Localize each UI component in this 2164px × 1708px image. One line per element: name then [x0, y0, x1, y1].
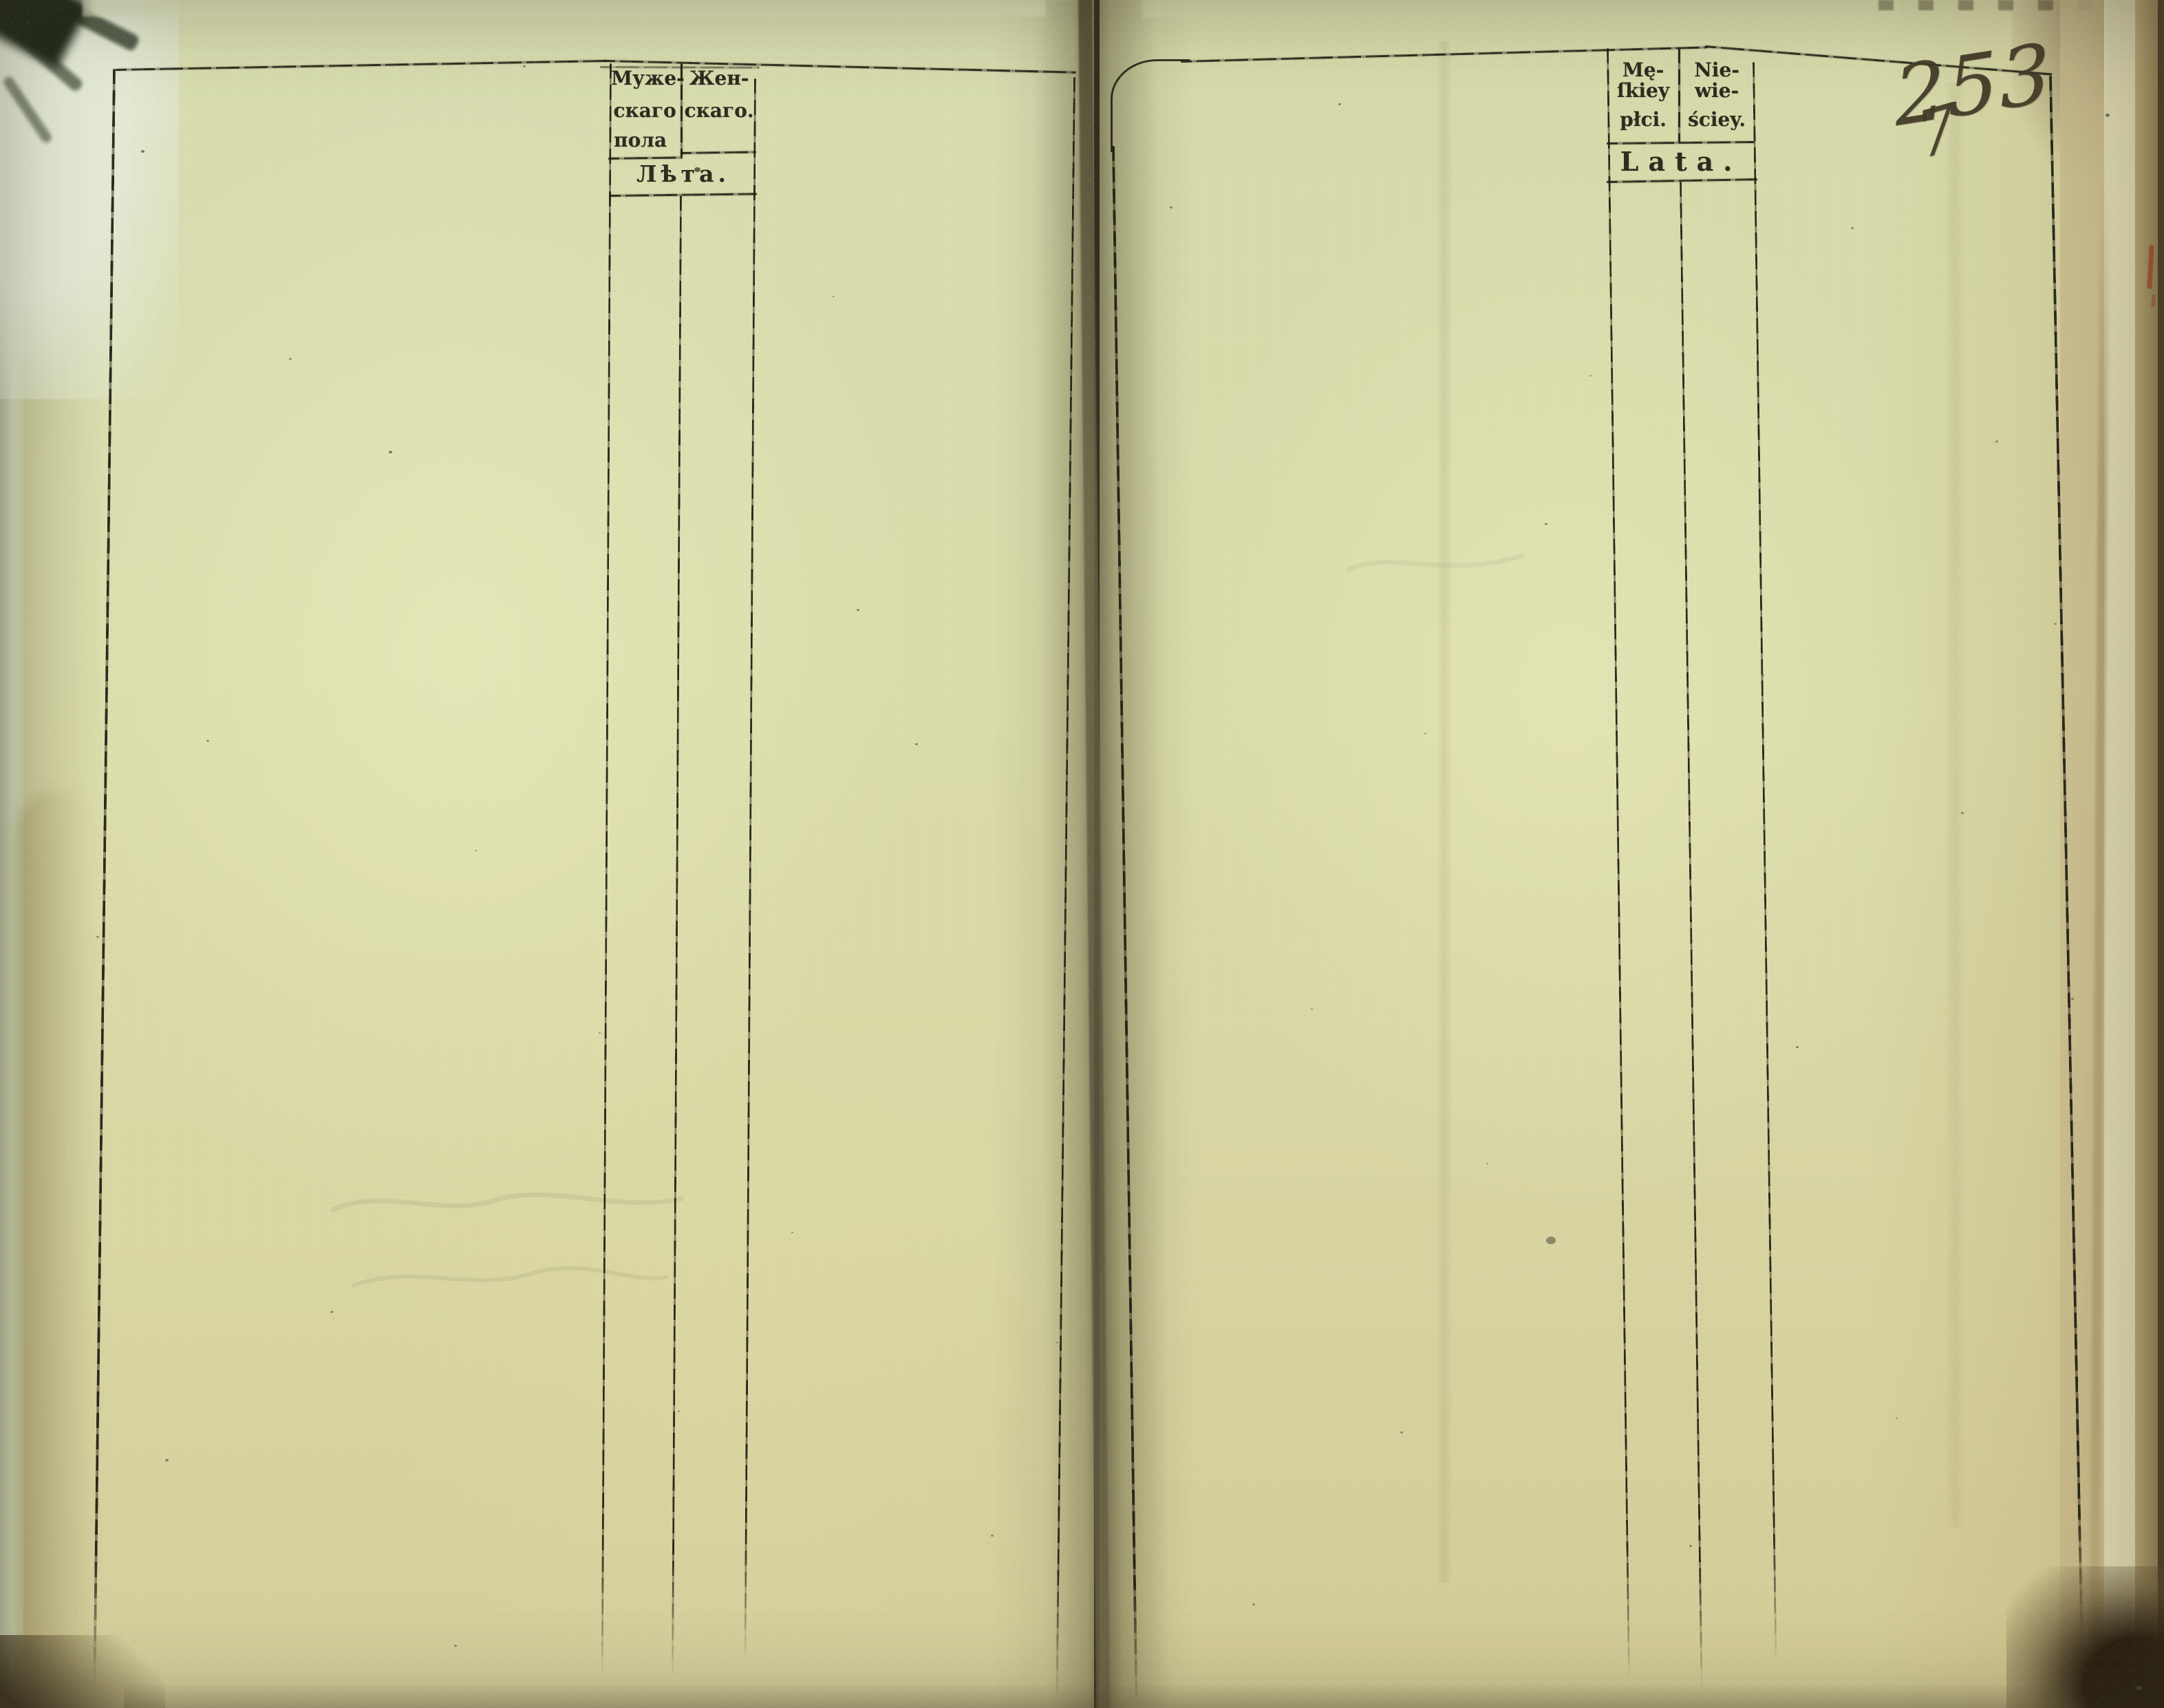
paper-speck — [1424, 733, 1426, 734]
paper-speck — [475, 850, 477, 851]
paper-speck — [678, 1411, 680, 1412]
left-header-male-line2: скаго — [610, 101, 680, 120]
paper-speck — [2106, 114, 2110, 117]
paper-speck — [915, 743, 918, 745]
paper-speck — [1896, 1418, 1898, 1419]
paper-speck — [1545, 523, 1547, 525]
ink-showthrough — [1342, 537, 1534, 599]
paper-speck — [96, 936, 99, 938]
paper-speck — [857, 609, 859, 611]
right-header-male-line3: płci. — [1608, 110, 1678, 129]
paper-speck — [1252, 1603, 1255, 1605]
paper-speck — [991, 1535, 994, 1537]
paper-speck — [2071, 998, 2074, 1000]
right-header-age-label: Lata. — [1608, 149, 1754, 175]
paper-speck — [694, 167, 700, 172]
ink-showthrough — [323, 1177, 695, 1314]
bottom-edge-shadow — [124, 1683, 2071, 1708]
paper-speck — [1689, 1545, 1692, 1547]
right-header-male-line2: ſkiey — [1608, 81, 1678, 100]
paper-speck — [141, 150, 144, 153]
paper-speck — [1311, 1008, 1313, 1010]
paper-edge-top — [83, 0, 1046, 17]
right-header-female-line3: ściey. — [1681, 110, 1753, 129]
left-header-male-line3: пола — [608, 131, 680, 150]
paper-speck — [523, 65, 526, 67]
paper-speck — [2054, 623, 2057, 625]
right-header-female-line1: Nie- — [1681, 61, 1753, 80]
paper-crease — [1435, 41, 1453, 1583]
paper-speck — [1056, 1342, 1058, 1343]
paper-speck — [1170, 206, 1172, 209]
left-header-female-line2: скаго. — [683, 101, 756, 120]
paper-speck — [330, 1311, 333, 1313]
paper-speck — [2136, 1686, 2142, 1690]
paper-speck — [1400, 1431, 1403, 1433]
paper-speck — [791, 1232, 793, 1233]
paper-edge-top — [1142, 0, 1899, 18]
paper-edge-right — [2158, 0, 2164, 1708]
left-header-age-label: Лѣта. — [611, 162, 756, 185]
paper-edge-right — [2104, 0, 2137, 1708]
right-header-female-line2: wie- — [1681, 81, 1753, 100]
left-header-male-line1: Муже- — [611, 69, 681, 88]
paper-speck — [389, 451, 392, 453]
paper-speck — [1796, 1046, 1799, 1048]
paper-speck — [1995, 440, 1998, 442]
corner-top-left — [0, 0, 179, 399]
paper-stain — [15, 791, 105, 1708]
book-scan: Муже- скаго пола Жен- скаго. Лѣта. Mę- ſ… — [0, 0, 2164, 1708]
paper-speck — [1338, 103, 1341, 105]
paper-speck — [599, 1032, 601, 1034]
paper-speck — [1961, 812, 1964, 814]
paper-speck — [206, 740, 209, 742]
paper-speck — [1589, 375, 1592, 376]
right-page — [1100, 0, 2164, 1708]
paper-speck — [833, 296, 835, 297]
paper-speck — [1851, 227, 1854, 229]
paper-speck — [1486, 1163, 1488, 1164]
left-header-female-line1: Жен- — [683, 69, 756, 88]
paper-speck — [289, 358, 292, 360]
paper-speck — [454, 1645, 457, 1647]
paper-speck — [1546, 1237, 1556, 1244]
left-page — [19, 0, 1094, 1708]
paper-speck — [165, 1459, 169, 1462]
paper-crease — [1945, 83, 1965, 1528]
right-table-corner — [1111, 59, 1190, 152]
paper-speck — [1761, 674, 1764, 676]
right-col-divider-top — [1678, 48, 1680, 143]
right-header-male-line1: Mę- — [1608, 61, 1678, 80]
